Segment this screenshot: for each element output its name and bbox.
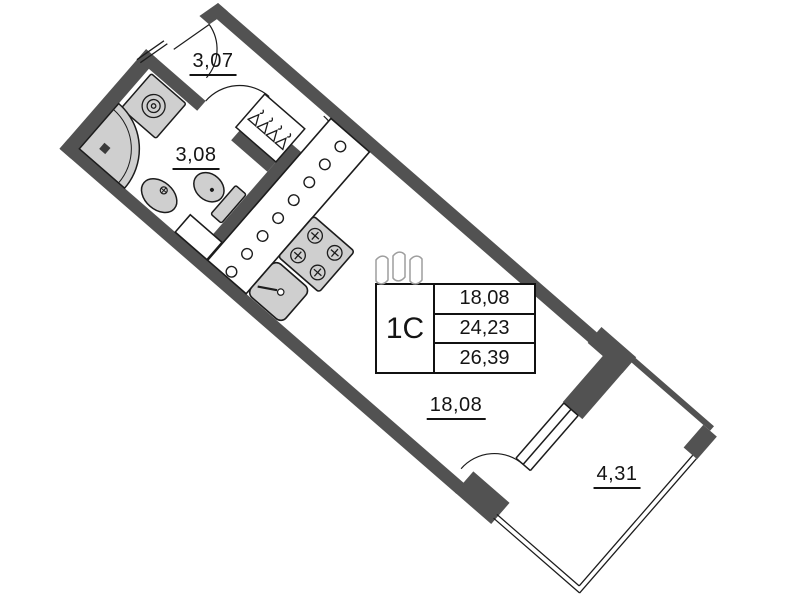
room-label-living-room: 18,08	[427, 394, 486, 420]
room-label-balcony: 4,31	[594, 463, 641, 489]
balcony-south-wall-outer	[494, 518, 580, 593]
info-table-areas: 18,08 24,23 26,39	[435, 285, 534, 372]
balcony-door-pier	[455, 471, 510, 524]
balcony-south-wall-inner	[497, 514, 579, 586]
balcony-window	[516, 403, 578, 471]
balcony-north-wall	[629, 356, 714, 431]
floor-plan-canvas: 3,07 3,08 18,08 4,31 1С 18,08 24,23 26,3…	[0, 0, 800, 600]
living-area-value: 18,08	[435, 285, 534, 315]
unit-type-label: 1С	[377, 285, 435, 372]
balcony-corner-pier	[684, 425, 717, 459]
window-pier	[563, 345, 632, 419]
total-area-value: 26,39	[435, 344, 534, 372]
info-table: 1С 18,08 24,23 26,39	[375, 283, 536, 374]
room-label-hallway: 3,07	[190, 50, 237, 76]
room-label-bathroom: 3,08	[173, 144, 220, 170]
apartment-area-value: 24,23	[435, 315, 534, 345]
